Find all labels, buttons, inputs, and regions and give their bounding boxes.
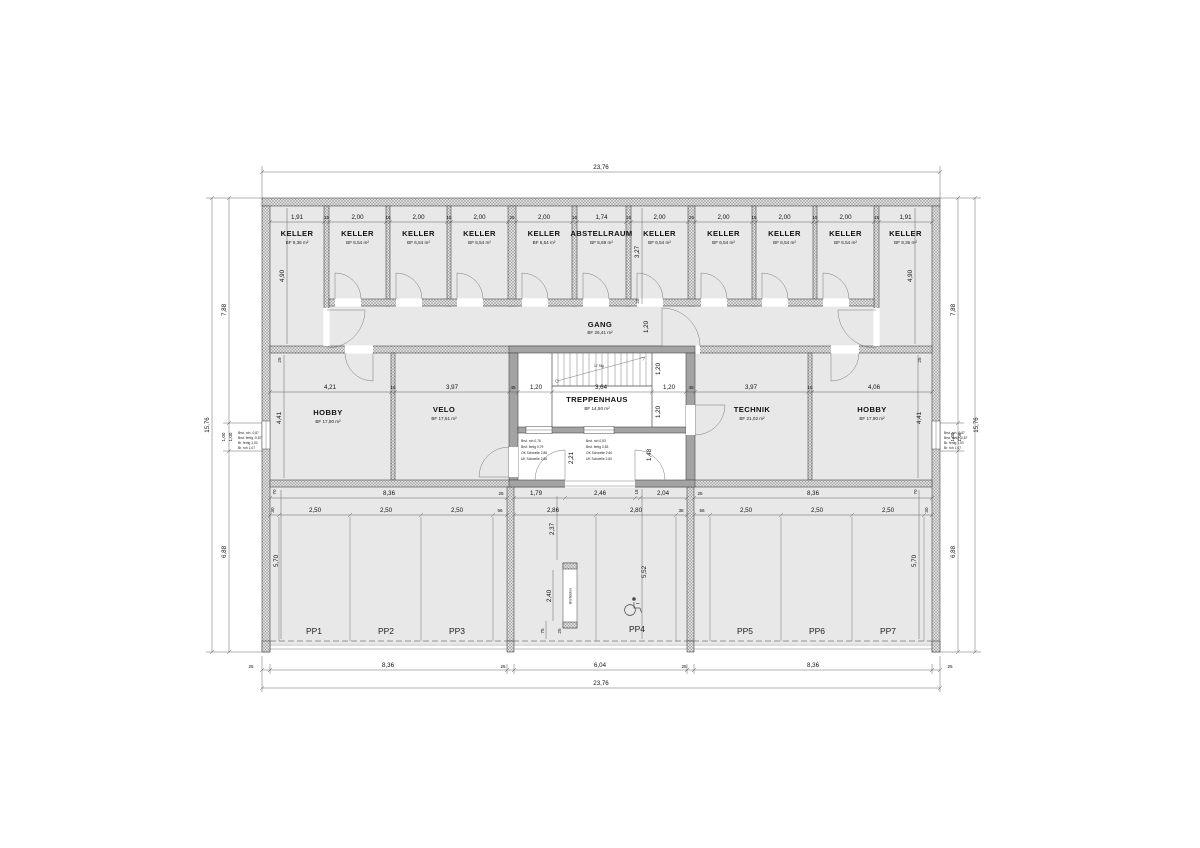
room-label: TECHNIK (734, 405, 771, 414)
parking-label: PP7 (880, 626, 896, 636)
dim-label: 25 (557, 628, 562, 634)
dim-label: 30 (270, 507, 275, 513)
dim-label: 70 (272, 489, 277, 495)
dim-label: 8,36 (807, 490, 820, 497)
dim-label: 1,91 (291, 214, 304, 221)
dim-label: 6,88 (221, 545, 228, 558)
dim-label: 2,00 (839, 214, 852, 221)
dim-label: 38 (678, 508, 684, 513)
room-area-treppenhaus: BF 14,50 m² (584, 406, 610, 411)
room-area: BF 17,90 m² (859, 416, 885, 421)
dim-label: 2,46 (594, 490, 607, 497)
dim-label: 2,00 (351, 214, 364, 221)
dim-label: 25 (498, 491, 504, 496)
dim-label: 4,41 (916, 411, 923, 424)
room-label-gang: GANG (588, 320, 612, 329)
dim-label: 2,50 (811, 507, 824, 514)
room-area: BF 17,90 m² (315, 419, 341, 424)
room-area: BF 6,54 m² (346, 240, 369, 245)
dim-label: 25 (917, 357, 922, 363)
room-label: KELLER (768, 229, 801, 238)
dim-label: 1,74 (595, 214, 608, 221)
dim-label: 7,88 (221, 303, 228, 316)
note-line: Br. fertig 1,00 (238, 441, 258, 445)
dim-label: 15 (324, 215, 330, 220)
dim-label: 15 (572, 215, 578, 220)
room-label-treppenhaus: TREPPENHAUS (566, 395, 628, 404)
dim-label: 2,50 (740, 507, 753, 514)
dim-label: 7,88 (950, 303, 957, 316)
room-label: KELLER (402, 229, 435, 238)
dim-exterior-top: 23,76 (260, 164, 942, 198)
room-area: BF 6,54 m² (533, 240, 556, 245)
dim-label: 5,70 (911, 554, 918, 567)
note-line: Brst. roh 0,76 (521, 439, 541, 443)
note-line: Br. fertig 1,00 (944, 441, 964, 445)
parking-label: PP4 (629, 624, 645, 634)
dim-label: 2,00 (538, 214, 551, 221)
room-label: ABSTELLRAUM (570, 229, 632, 238)
room-area: BF 6,54 m² (407, 240, 430, 245)
room-area: BF 6,54 m² (648, 240, 671, 245)
room-label: VELO (433, 405, 455, 414)
note-line: Brst. roh -0,87 (238, 431, 259, 435)
note-line: OK Schwelle 2,60 (586, 451, 612, 455)
dim-label: 1,00 (228, 432, 233, 441)
dim-label: 3,27 (634, 245, 641, 258)
dim-label: 15 (751, 215, 757, 220)
dim-label: 2,00 (778, 214, 791, 221)
dim-label: 1,20 (655, 362, 662, 375)
dim-label: 4,06 (868, 384, 881, 391)
dim-label: 18 (634, 489, 639, 495)
dim-label: 25 (697, 491, 703, 496)
dim-label: 2,37 (549, 522, 556, 535)
note-line: Brst. fertig 0,79 (521, 445, 544, 449)
dim-label-total-top: 23,76 (593, 164, 609, 171)
dim-label: 1,20 (530, 384, 543, 391)
dim-label-total-left: 15,76 (204, 417, 211, 433)
dim-label: 8,36 (383, 490, 396, 497)
dim-label: 1,20 (643, 320, 650, 333)
dim-label: 30 (924, 507, 929, 513)
room-label: KELLER (707, 229, 740, 238)
dim-label: 25 (277, 357, 282, 363)
floor-plan-drawing: 17 Stg. (0, 0, 1200, 848)
dim-label: 4,21 (324, 384, 337, 391)
room-label: KELLER (463, 229, 496, 238)
dim-label: 1,20 (655, 405, 662, 418)
dim-label: 2,80 (630, 507, 643, 514)
dim-label: 5,70 (273, 554, 280, 567)
dim-label: 2,00 (473, 214, 486, 221)
dim-label: 3,97 (745, 384, 758, 391)
dim-label: 2,50 (309, 507, 322, 514)
dim-exterior-bottom: 25 8,36 25 6,04 25 8,36 25 23,76 (248, 656, 953, 692)
dim-label: 2,21 (568, 451, 575, 464)
dim-label: 2,00 (717, 214, 730, 221)
room-label: KELLER (829, 229, 862, 238)
dim-label: 4,90 (279, 269, 286, 282)
dim-label: 15 (446, 215, 452, 220)
room-label: HOBBY (313, 408, 342, 417)
dim-label: 25 (947, 664, 953, 669)
dim-label: 25 (635, 298, 640, 304)
note-line: UK Schwelle 2,60 (586, 457, 612, 461)
note-line: Br. roh 1,07 (944, 446, 961, 450)
dim-label: 2,04 (657, 490, 670, 497)
dim-label: 2,50 (380, 507, 393, 514)
room-area: BF 6,54 m² (468, 240, 491, 245)
dim-label: 3,97 (446, 384, 459, 391)
dim-label: 6,04 (594, 662, 607, 669)
facade-lines (262, 645, 940, 649)
dim-label: 2,40 (546, 589, 553, 602)
room-area: BF 9,36 m² (286, 240, 309, 245)
dim-label: 1,91 (899, 214, 912, 221)
parking-label: PP2 (378, 626, 394, 636)
dim-label: 2,50 (451, 507, 464, 514)
dim-label: 56 (699, 508, 705, 513)
dim-label-total-bottom: 23,76 (593, 680, 609, 687)
dim-label: 5,52 (641, 565, 648, 578)
room-label: KELLER (281, 229, 314, 238)
room-area: BF 6,54 m² (773, 240, 796, 245)
note-line: Brst. roh 0,83 (586, 439, 606, 443)
parking-label: PP5 (737, 626, 753, 636)
room-area: BF 6,54 m² (712, 240, 735, 245)
dim-label: 45 (688, 385, 694, 390)
dim-label: 56 (497, 508, 503, 513)
dim-label: 2,00 (653, 214, 666, 221)
room-area: BF 9,36 m² (894, 240, 917, 245)
dim-exterior-right: 7,88 1,00 1,00 6,88 15,76 (940, 196, 981, 654)
dim-label: 25 (509, 215, 515, 220)
stair-note: 17 Stg. (594, 364, 605, 368)
room-area: BF 5,69 m² (590, 240, 613, 245)
wall-top (262, 198, 940, 206)
room-area: BF 17,51 m² (431, 416, 457, 421)
dim-label-total-right: 15,76 (973, 417, 980, 433)
mailbox: Briefkästen (563, 563, 577, 628)
dim-label: 1,48 (646, 448, 653, 461)
note-line: OK Schwelle 2,86 (521, 451, 547, 455)
dim-label: 70 (913, 489, 918, 495)
dim-label: 75 (540, 628, 545, 634)
room-area-gang: BF 26,41 m² (587, 330, 613, 335)
note-line: UK Schwelle 2,86 (521, 457, 547, 461)
dim-label: 2,86 (547, 507, 560, 514)
parking-label: PP3 (449, 626, 465, 636)
dim-exterior-left: 7,88 1,00 1,00 6,88 15,76 (204, 196, 262, 654)
parking-label: PP1 (306, 626, 322, 636)
dim-label: 2,00 (412, 214, 425, 221)
dim-label: 8,36 (382, 662, 395, 669)
room-label: KELLER (528, 229, 561, 238)
mailbox-label: Briefkästen (569, 588, 573, 604)
room-label: KELLER (643, 229, 676, 238)
dim-label: 15 (812, 215, 818, 220)
dim-label: 15 (807, 385, 813, 390)
note-line: Br. roh 1,07 (238, 446, 255, 450)
room-area: BF 21,02 m² (739, 416, 765, 421)
room-label: KELLER (341, 229, 374, 238)
dim-label: 4,90 (907, 269, 914, 282)
dim-label: 25 (500, 664, 506, 669)
room-area: BF 6,54 m² (834, 240, 857, 245)
note-line: Brst. roh -0,87 (944, 431, 965, 435)
dim-label: 15 (385, 215, 391, 220)
keller-gang-wall (329, 298, 874, 306)
room-label: KELLER (889, 229, 922, 238)
dim-label: 4,41 (276, 411, 283, 424)
dim-label: 15 (626, 215, 632, 220)
note-line: Brst. fertig 0,83 (586, 445, 609, 449)
dim-label: 15 (874, 215, 880, 220)
dim-label: 25 (689, 215, 695, 220)
dim-label: 25 (681, 664, 687, 669)
dim-label: 45 (510, 385, 516, 390)
note-line: Brst. fertig -0,87 (238, 436, 262, 440)
dim-label: 8,36 (807, 662, 820, 669)
dim-label: 2,50 (882, 507, 895, 514)
room-label: HOBBY (857, 405, 886, 414)
note-line: Brst. fertig -0,87 (944, 436, 968, 440)
dim-label: 15 (390, 385, 396, 390)
dim-label: 3,64 (595, 384, 608, 391)
dim-label: 1,79 (530, 490, 543, 497)
dim-label: 6,88 (950, 545, 957, 558)
dim-label: 25 (248, 664, 254, 669)
parking-label: PP6 (809, 626, 825, 636)
dim-label: 1,20 (663, 384, 676, 391)
dim-label: 1,00 (221, 432, 226, 441)
